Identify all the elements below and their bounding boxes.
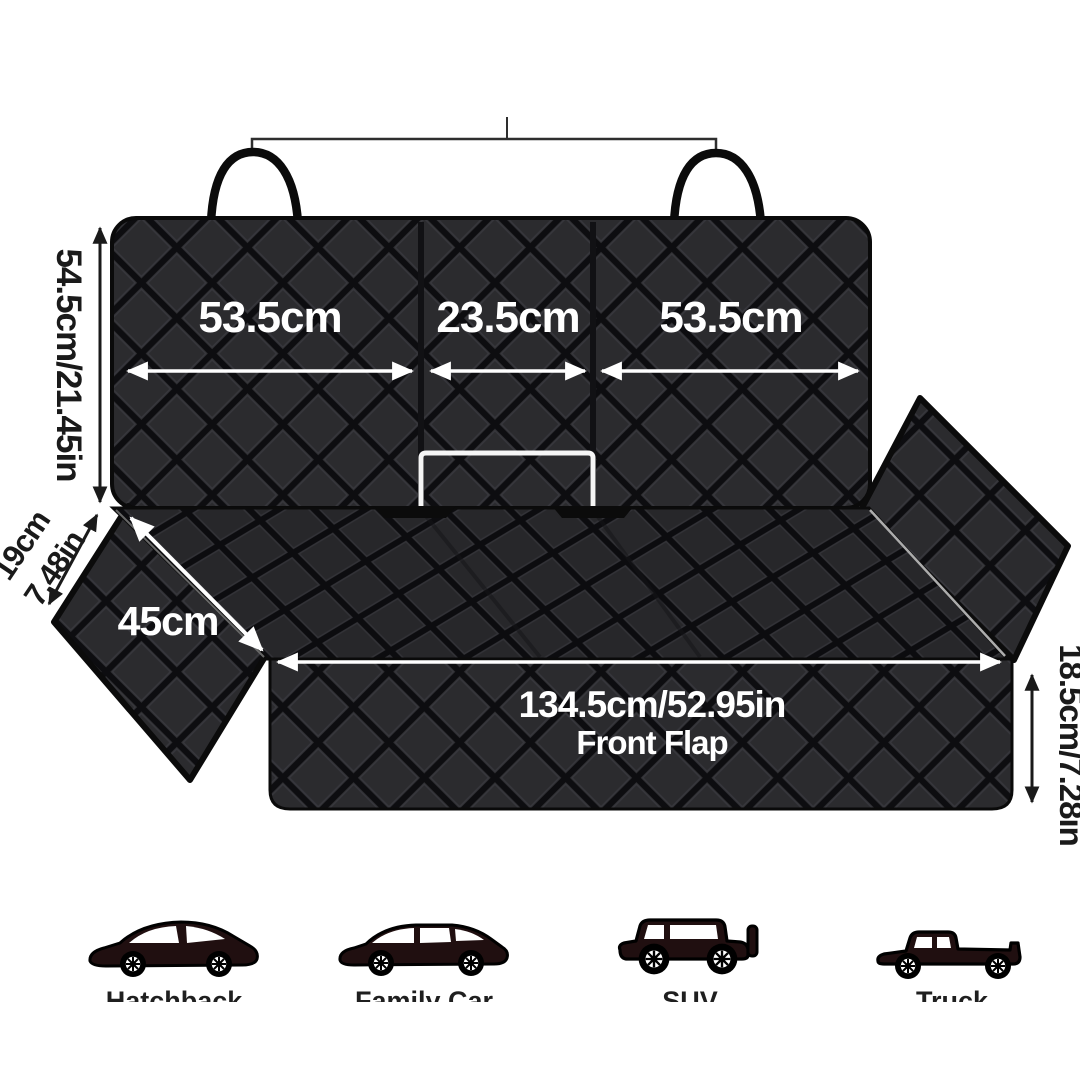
front-width-value: 134.5cm/52.95in bbox=[519, 684, 786, 725]
suv-icon bbox=[620, 920, 758, 974]
vehicle-label: Family Car bbox=[355, 986, 494, 1016]
family-car-icon bbox=[340, 925, 508, 976]
headrest-strap-left-icon bbox=[211, 152, 298, 223]
velcro-tab-right bbox=[552, 506, 634, 518]
front-flap-label: Front Flap bbox=[576, 724, 727, 761]
vehicle-labels: Hatchback Family Car SUV Truck bbox=[106, 986, 989, 1016]
backrest-width-left-value: 53.5cm bbox=[198, 293, 341, 342]
top-guide-line bbox=[252, 117, 716, 154]
vehicle-label: Truck bbox=[916, 986, 989, 1016]
backrest-width-right-value: 53.5cm bbox=[659, 293, 802, 342]
vehicle-label: Hatchback bbox=[106, 986, 244, 1016]
vehicle-row bbox=[90, 920, 1020, 979]
headrest-strap-right-icon bbox=[674, 153, 761, 224]
backrest-panel bbox=[112, 218, 870, 508]
backrest-width-middle-value: 23.5cm bbox=[436, 293, 579, 342]
seat-side-value: 45cm bbox=[118, 598, 219, 644]
seat-cover-dimension-diagram: 53.5cm 23.5cm 53.5cm 54.5cm/21.45in 19cm… bbox=[0, 0, 1080, 1080]
diagram-canvas: 53.5cm 23.5cm 53.5cm 54.5cm/21.45in 19cm… bbox=[0, 0, 1080, 1080]
vehicle-label: SUV bbox=[662, 986, 718, 1016]
velcro-tab-left bbox=[374, 506, 456, 518]
truck-icon bbox=[878, 932, 1020, 979]
hatchback-icon bbox=[90, 922, 257, 977]
front-height-value: 18.5cm/7.28in bbox=[1053, 644, 1080, 846]
backrest-height-value: 54.5cm/21.45in bbox=[49, 248, 88, 481]
